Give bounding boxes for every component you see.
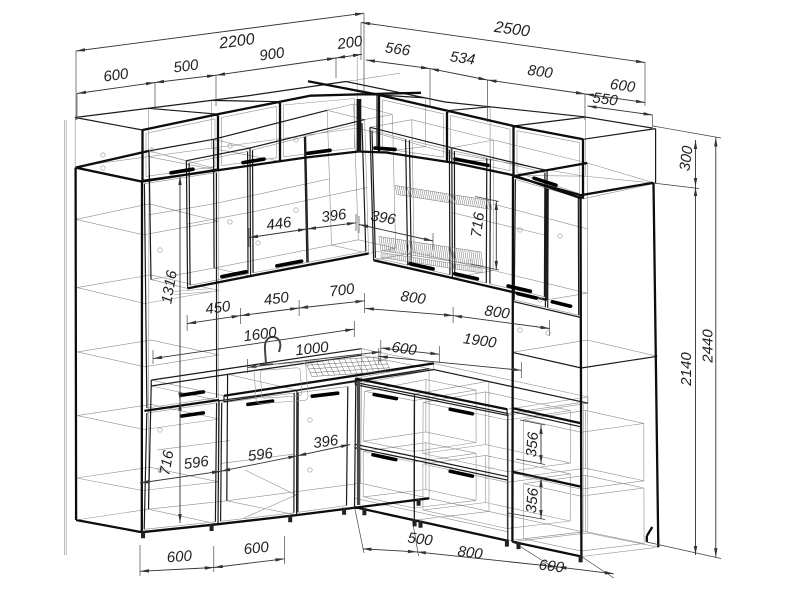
- svg-text:700: 700: [328, 280, 356, 300]
- svg-text:396: 396: [312, 432, 340, 452]
- svg-text:600: 600: [102, 65, 130, 85]
- svg-text:2440: 2440: [699, 329, 716, 364]
- svg-text:2140: 2140: [678, 352, 695, 387]
- svg-text:450: 450: [263, 289, 291, 309]
- svg-text:600: 600: [243, 539, 270, 559]
- svg-text:550: 550: [591, 89, 619, 109]
- svg-text:356: 356: [523, 431, 542, 458]
- svg-text:800: 800: [457, 543, 485, 563]
- svg-text:500: 500: [172, 56, 200, 76]
- svg-text:800: 800: [483, 302, 511, 322]
- svg-text:596: 596: [183, 453, 211, 473]
- svg-text:450: 450: [204, 298, 232, 318]
- svg-text:300: 300: [676, 144, 696, 172]
- svg-text:600: 600: [166, 548, 193, 567]
- svg-text:396: 396: [320, 206, 348, 226]
- svg-text:596: 596: [247, 445, 275, 465]
- svg-text:600: 600: [391, 339, 419, 359]
- svg-text:534: 534: [449, 48, 476, 68]
- svg-text:800: 800: [526, 62, 554, 82]
- svg-text:566: 566: [384, 39, 412, 59]
- svg-text:716: 716: [468, 211, 488, 239]
- svg-text:500: 500: [407, 530, 435, 550]
- svg-text:356: 356: [523, 487, 542, 514]
- svg-text:600: 600: [538, 557, 566, 577]
- svg-text:800: 800: [399, 288, 427, 308]
- svg-text:900: 900: [258, 44, 286, 64]
- svg-text:446: 446: [265, 214, 293, 234]
